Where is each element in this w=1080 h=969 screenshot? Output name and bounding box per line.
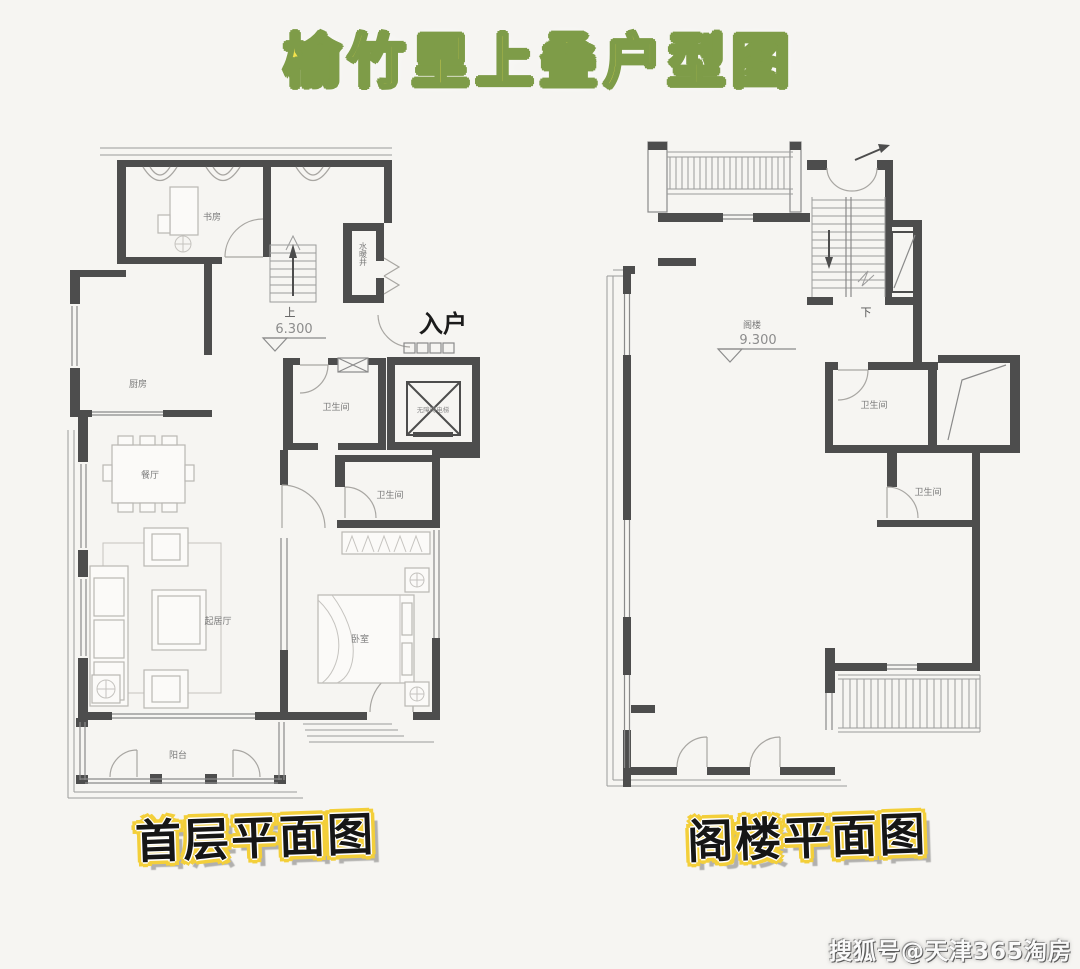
elevator-label: 无障碍电梯 xyxy=(417,405,450,414)
attic-bathroom-upper-label: 卫生间 xyxy=(860,399,887,411)
entry-label: 入户 xyxy=(419,310,467,338)
sloped-room-line xyxy=(948,365,1006,440)
attic-caption: 阁楼平面图 xyxy=(661,797,953,873)
stairs-down-label: 下 xyxy=(861,306,872,319)
elevator xyxy=(404,343,460,435)
first-floor-caption: 首层平面图 xyxy=(109,797,401,873)
attic-walls xyxy=(623,160,1020,787)
page-title: 榆竹里上叠户型图 xyxy=(0,16,1080,98)
roof-terrace-top xyxy=(648,142,801,212)
dining-label: 餐厅 xyxy=(141,469,159,481)
bathroom-upper-label: 卫生间 xyxy=(322,401,349,413)
living-label: 起居厅 xyxy=(204,616,231,627)
balcony-label: 阳台 xyxy=(169,749,187,761)
attic-windows xyxy=(625,215,918,768)
bathroom-lower-label: 卫生间 xyxy=(376,489,403,501)
attic-bathroom-lower-label: 卫生间 xyxy=(914,486,941,498)
attic-doors xyxy=(677,370,918,767)
roof-terrace-bottom xyxy=(838,675,980,732)
attic-plan: 下 阁楼 9.300 卫生间 卫生间 xyxy=(600,130,1020,810)
elevation-marker-6300 xyxy=(263,338,326,351)
bathroom-window xyxy=(338,358,368,372)
first-floor-plan: 书房 水暖井 上 6.300 入户 无障碍电梯 厨房 卫生间 卫生间 餐厅 起居… xyxy=(60,130,480,810)
first-floor-stairs xyxy=(270,236,316,302)
watermark: 搜狐号@天津365淘房 xyxy=(829,932,1072,966)
kitchen-label: 厨房 xyxy=(129,378,147,390)
elevation-marker-9300 xyxy=(718,349,796,362)
attic-label: 阁楼 xyxy=(743,319,761,331)
utility-shaft-label: 水暖井 xyxy=(359,241,368,267)
stairs-up-label: 上 xyxy=(285,306,296,319)
bedroom-label: 卧室 xyxy=(351,633,369,645)
floorplan-poster: 榆竹里上叠户型图 xyxy=(0,0,1080,969)
elevation-6300: 6.300 xyxy=(275,322,312,337)
study-label: 书房 xyxy=(203,211,221,223)
elevation-9300: 9.300 xyxy=(739,333,776,348)
attic-stairs xyxy=(812,197,885,297)
